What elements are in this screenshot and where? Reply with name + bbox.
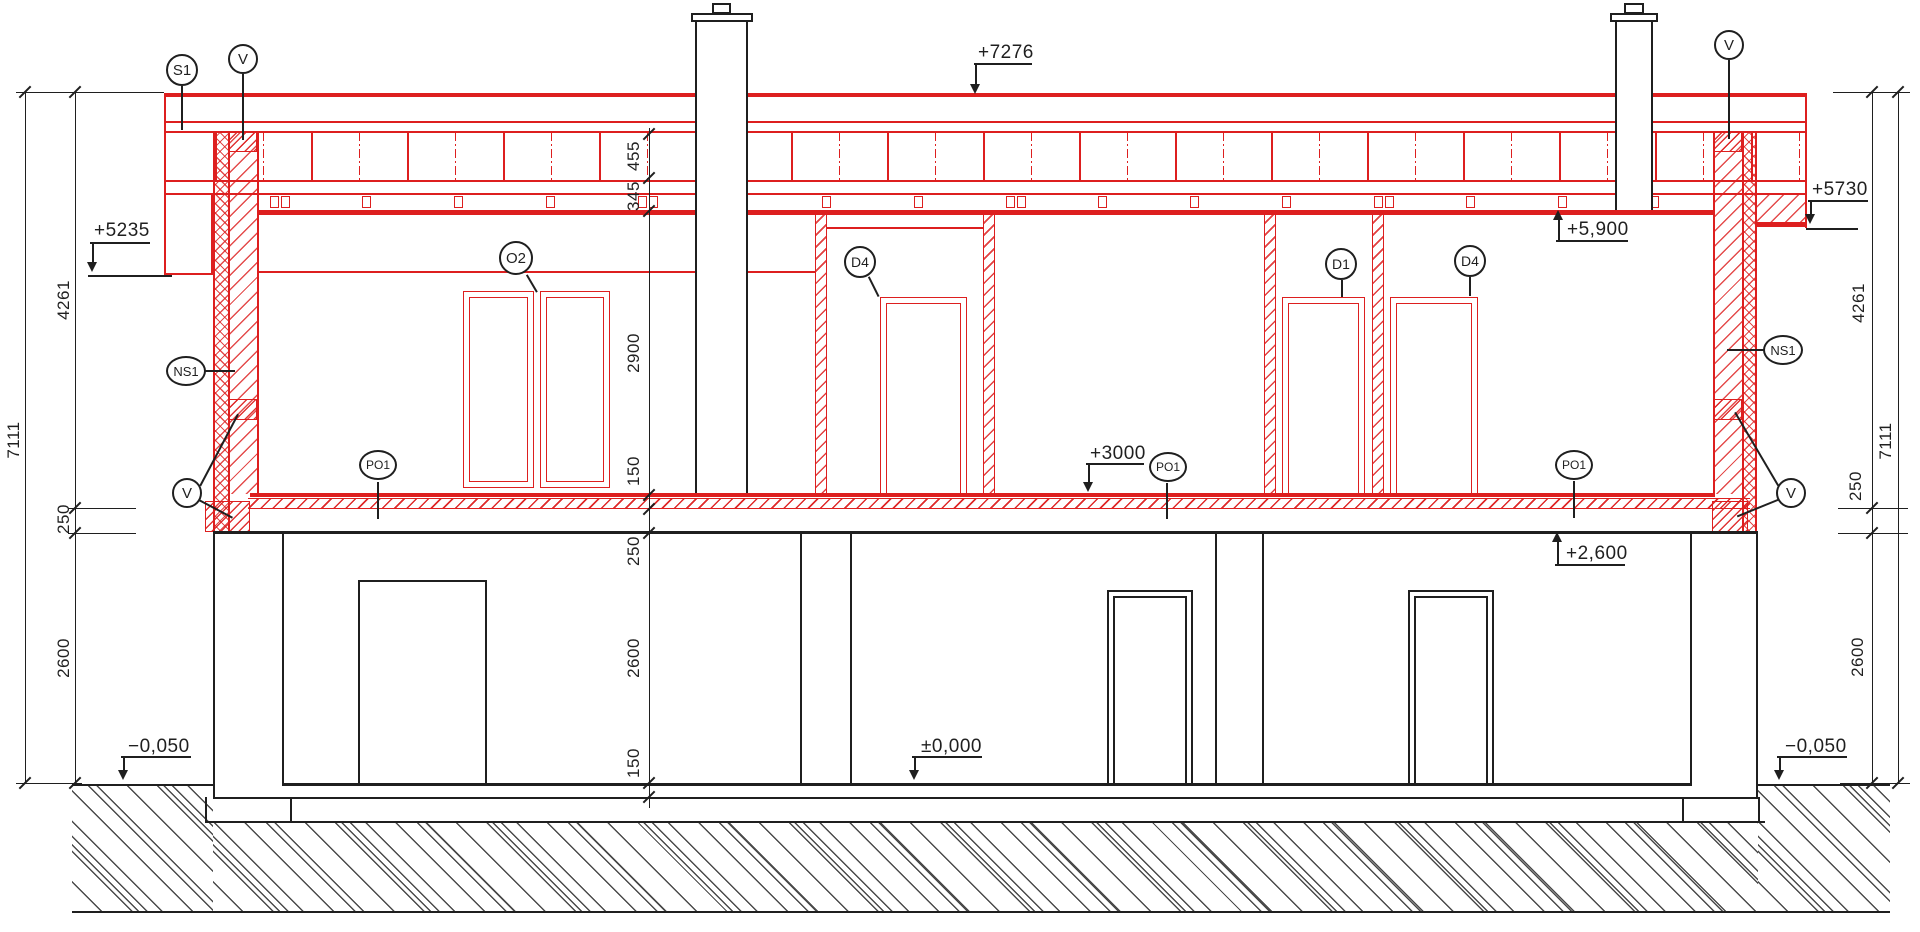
rafter-line <box>1751 132 1753 180</box>
leader-line <box>1341 280 1343 297</box>
dimension-line <box>25 92 26 784</box>
rafter-centerline <box>1031 132 1032 180</box>
rafter-line <box>791 132 793 180</box>
elevation-arrow-icon <box>1552 532 1562 542</box>
elevation-underline <box>1555 564 1625 566</box>
batten <box>1098 196 1107 208</box>
black-hline <box>16 92 164 93</box>
callout-v: V <box>1776 478 1806 508</box>
elevation-label: −0,050 <box>1785 736 1847 758</box>
wall-brick-right <box>1713 131 1742 494</box>
elevation-label: +7276 <box>978 42 1034 64</box>
elevation-label: −0,050 <box>128 736 190 758</box>
eaves-box-right <box>1757 193 1806 223</box>
leader-line <box>181 86 183 130</box>
batten <box>1006 196 1015 208</box>
callout-v: V <box>1714 30 1744 60</box>
elevation-drop-line <box>123 756 125 770</box>
callout-v: V <box>172 478 202 508</box>
rafter-centerline <box>1223 132 1224 180</box>
black-vline <box>1758 797 1760 822</box>
wall-insulation-left <box>213 131 228 532</box>
rafter-line <box>1175 132 1177 180</box>
leader-line <box>868 276 879 297</box>
door-lower-right-inner <box>1414 596 1488 783</box>
elevation-arrow-icon <box>1083 482 1093 492</box>
elevation-underline <box>912 756 982 758</box>
elevation-arrow-icon <box>1553 210 1563 220</box>
dimension-text: 2900 <box>624 318 644 388</box>
callout-d4: D4 <box>844 246 876 278</box>
rafter-centerline <box>455 132 456 180</box>
rafter-centerline <box>263 132 264 180</box>
dimension-text: 250 <box>624 516 644 586</box>
black-hline <box>1727 349 1765 351</box>
rafter-line <box>1559 132 1561 180</box>
rafter-line <box>1655 132 1657 180</box>
black-hline <box>1840 783 1910 784</box>
elevation-underline <box>1777 756 1847 758</box>
callout-po1: PO1 <box>1555 450 1593 480</box>
ringbeam-left-mid <box>228 399 257 420</box>
black-hline <box>88 275 172 277</box>
elevation-drop-line <box>1088 463 1090 482</box>
red-vline <box>164 93 166 275</box>
batten <box>281 196 290 208</box>
partition-wall-1 <box>815 212 827 494</box>
chimney-right-cap <box>1610 13 1658 22</box>
window-O2-left-sash-inner <box>469 297 528 482</box>
red-hline <box>257 210 1713 215</box>
leader-line <box>526 274 537 292</box>
elevation-underline <box>1556 240 1628 242</box>
rafter-centerline <box>359 132 360 180</box>
callout-d1: D1 <box>1325 248 1357 280</box>
elevation-label: +2,600 <box>1566 543 1628 565</box>
dimension-text: 250 <box>54 484 74 554</box>
red-vline <box>1742 131 1744 533</box>
black-vline <box>1682 797 1684 822</box>
elevation-drop-line <box>1557 541 1559 564</box>
dimension-line <box>649 128 650 808</box>
dimension-text: 7111 <box>4 405 24 475</box>
black-vline <box>282 533 284 783</box>
elevation-drop-line <box>1779 756 1781 770</box>
leader-line <box>242 74 244 140</box>
black-vline <box>290 797 292 822</box>
rafter-line <box>887 132 889 180</box>
callout-v: V <box>228 44 258 74</box>
elevation-drop-line <box>1810 200 1812 214</box>
rafter-centerline <box>1607 132 1608 180</box>
dimension-text: 2600 <box>624 623 644 693</box>
black-hline <box>1806 228 1858 230</box>
partition-wall-3 <box>1264 212 1276 494</box>
black-vline <box>1756 533 1758 798</box>
chimney-left-top <box>712 3 731 14</box>
dimension-text: 150 <box>624 728 644 798</box>
batten <box>1190 196 1199 208</box>
chimney-right-top <box>1624 3 1644 14</box>
red-hline <box>164 180 1807 182</box>
black-vline <box>1690 533 1692 783</box>
red-hline <box>827 227 983 229</box>
rafter-line <box>1367 132 1369 180</box>
elevation-label: +5235 <box>94 220 150 242</box>
red-hline <box>164 121 1807 123</box>
chimney-right-body <box>1615 22 1653 210</box>
rafter-line <box>1271 132 1273 180</box>
elevation-arrow-icon <box>1774 770 1784 780</box>
dimension-text: 150 <box>624 436 644 506</box>
black-vline <box>1215 533 1217 783</box>
rafter-centerline <box>1415 132 1416 180</box>
dimension-text: 2600 <box>54 623 74 693</box>
rafter-centerline <box>935 132 936 180</box>
black-hline <box>72 784 213 786</box>
rafter-centerline <box>1319 132 1320 180</box>
leader-line <box>1469 277 1471 296</box>
elevation-underline <box>1086 463 1144 465</box>
ground-hatch <box>1758 786 1890 911</box>
red-vline <box>1713 131 1715 495</box>
rafter-line <box>983 132 985 180</box>
black-hline <box>72 911 1890 913</box>
red-hline <box>250 493 1715 497</box>
elevation-label: +5730 <box>1812 179 1868 201</box>
leader-line <box>1728 60 1730 139</box>
dimension-line <box>75 92 76 784</box>
elevation-drop-line <box>1558 219 1560 240</box>
batten <box>1558 196 1567 208</box>
elevation-arrow-icon <box>909 770 919 780</box>
rafter-centerline <box>839 132 840 180</box>
batten <box>822 196 831 208</box>
door-D4-left-inner <box>886 303 961 495</box>
dimension-line <box>1872 92 1873 784</box>
callout-ns1: NS1 <box>166 356 206 386</box>
door-D4-right-inner <box>1396 303 1472 495</box>
callout-po1: PO1 <box>359 450 397 480</box>
black-hline <box>203 370 235 372</box>
black-hline <box>213 797 1758 799</box>
ground-hatch <box>72 786 213 911</box>
elevation-drop-line <box>92 242 94 262</box>
dimension-text: 250 <box>1846 451 1866 521</box>
leader-line <box>1166 483 1168 519</box>
rafter-line <box>599 132 601 180</box>
window-O2-right-sash-inner <box>546 297 604 482</box>
batten <box>270 196 279 208</box>
black-vline <box>850 533 852 783</box>
dimension-text: 345 <box>624 161 644 231</box>
batten <box>454 196 463 208</box>
black-hline <box>205 821 1765 823</box>
rafter-line <box>407 132 409 180</box>
red-vline <box>1755 131 1757 533</box>
rafter-line <box>503 132 505 180</box>
elevation-arrow-icon <box>1805 214 1815 224</box>
red-hline <box>164 193 1807 195</box>
dimension-text: 7111 <box>1876 406 1896 476</box>
rafter-line <box>215 132 217 180</box>
red-vline <box>228 131 230 533</box>
elevation-label: +5,900 <box>1567 219 1629 241</box>
chimney-left-cap <box>691 13 753 22</box>
red-vline <box>1805 93 1807 228</box>
black-hline <box>282 783 1692 786</box>
elevation-arrow-icon <box>118 770 128 780</box>
section-drawing-canvas: 7111426125026004553452900150250260015042… <box>0 0 1920 932</box>
rafter-line <box>311 132 313 180</box>
batten <box>1282 196 1291 208</box>
black-hline <box>68 508 136 509</box>
door-lower-middle-inner <box>1113 596 1187 783</box>
red-hline <box>164 93 1807 97</box>
rafter-line <box>1079 132 1081 180</box>
dimension-text: 4261 <box>54 265 74 335</box>
elevation-drop-line <box>975 63 977 84</box>
rafter-centerline <box>1511 132 1512 180</box>
door-lower-left <box>358 580 487 783</box>
elevation-drop-line <box>914 756 916 770</box>
leader-line <box>377 482 379 519</box>
elevation-underline <box>121 756 191 758</box>
red-vline <box>213 131 215 533</box>
callout-o2: O2 <box>499 241 533 275</box>
red-hline <box>1757 222 1807 227</box>
red-hline <box>248 508 1750 509</box>
red-hline <box>164 131 1807 133</box>
rafter-centerline <box>1799 132 1800 180</box>
dimension-text: 4261 <box>1849 268 1869 338</box>
elevation-underline <box>1808 200 1868 202</box>
black-vline <box>205 797 207 822</box>
batten <box>1017 196 1026 208</box>
batten <box>914 196 923 208</box>
chimney-left-body <box>695 22 748 493</box>
rafter-centerline <box>551 132 552 180</box>
callout-d4: D4 <box>1454 245 1486 277</box>
door-D1-inner <box>1288 303 1359 495</box>
partition-wall-2 <box>983 212 995 494</box>
black-vline <box>1262 533 1264 783</box>
elevation-underline <box>90 242 150 244</box>
batten <box>546 196 555 208</box>
rafter-centerline <box>1127 132 1128 180</box>
red-vline <box>257 131 259 495</box>
rafter-centerline <box>1703 132 1704 180</box>
partition-wall-4 <box>1372 212 1384 494</box>
red-hline <box>248 498 1750 499</box>
callout-s1: S1 <box>166 54 198 86</box>
elevation-arrow-icon <box>970 84 980 94</box>
elevation-arrow-icon <box>87 262 97 272</box>
batten <box>1466 196 1475 208</box>
leader-line <box>1573 481 1575 518</box>
black-hline <box>68 533 136 534</box>
elevation-label: ±0,000 <box>921 736 982 758</box>
black-vline <box>213 533 215 798</box>
black-vline <box>800 533 802 783</box>
batten <box>362 196 371 208</box>
black-hline <box>213 531 1758 534</box>
ground-hatch <box>213 822 1758 911</box>
elevation-label: +3000 <box>1090 443 1146 465</box>
rafter-line <box>1463 132 1465 180</box>
batten <box>1385 196 1394 208</box>
callout-po1: PO1 <box>1149 452 1187 482</box>
batten <box>1374 196 1383 208</box>
elevation-underline <box>974 63 1032 65</box>
dimension-line <box>1898 92 1899 784</box>
callout-ns1: NS1 <box>1763 335 1803 365</box>
dimension-text: 2600 <box>1848 622 1868 692</box>
wall-brick-left <box>228 131 257 494</box>
